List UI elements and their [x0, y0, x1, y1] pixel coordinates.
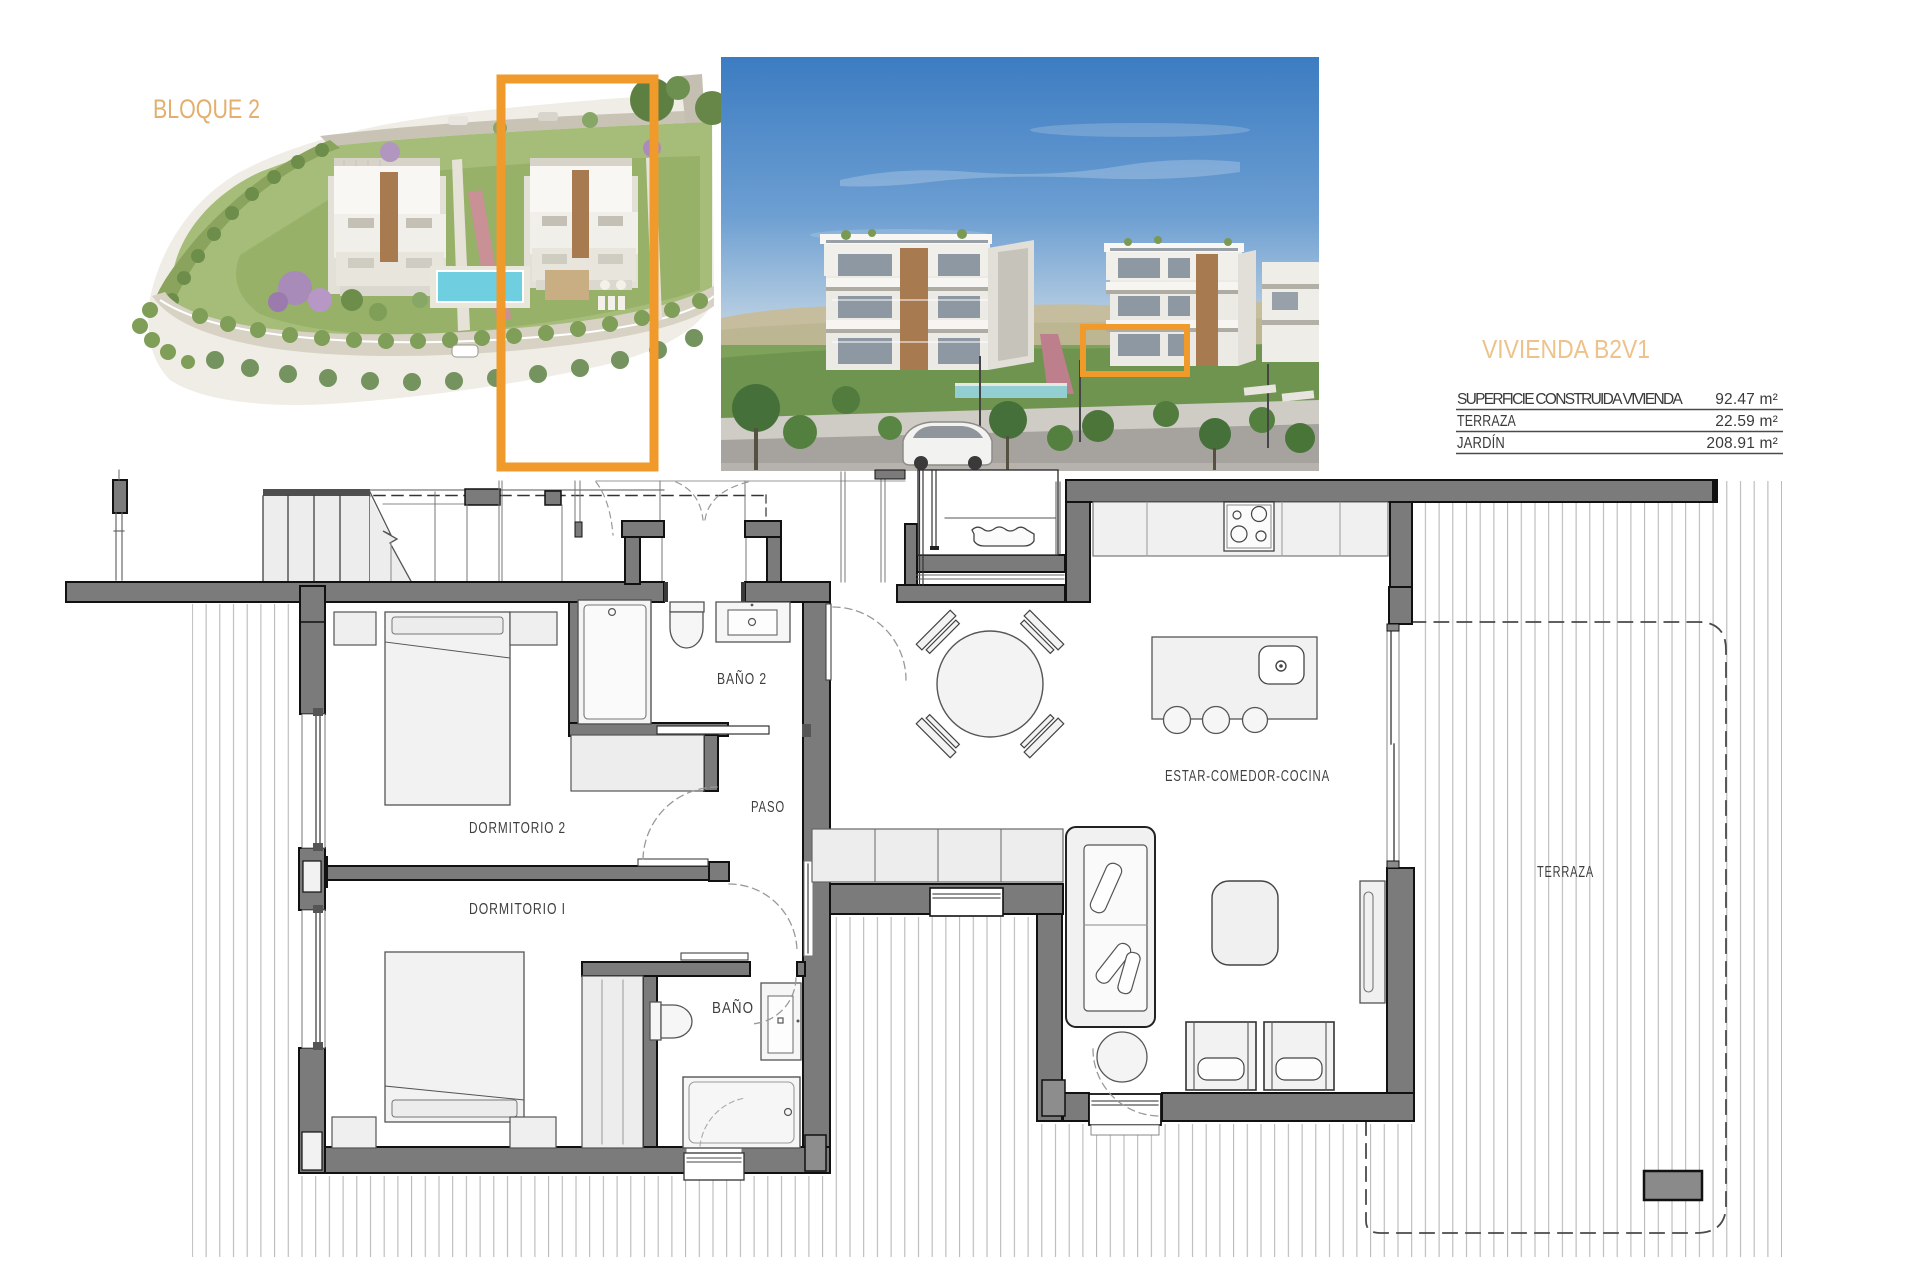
svg-text:208.91 m²: 208.91 m² — [1706, 435, 1778, 452]
svg-text:TERRAZA: TERRAZA — [1457, 413, 1516, 430]
svg-text:VIVIENDA B2V1: VIVIENDA B2V1 — [1482, 334, 1650, 364]
svg-text:BAÑO 2: BAÑO 2 — [717, 668, 767, 688]
svg-text:PASO: PASO — [751, 799, 785, 816]
svg-text:SUPERFICIE CONSTRUIDA VIVIENDA: SUPERFICIE CONSTRUIDA VIVIENDA — [1457, 391, 1683, 408]
svg-text:TERRAZA: TERRAZA — [1537, 864, 1594, 881]
svg-text:DORMITORIO I: DORMITORIO I — [469, 901, 566, 918]
svg-text:BAÑO: BAÑO — [712, 997, 754, 1017]
svg-text:BLOQUE 2: BLOQUE 2 — [153, 94, 260, 124]
svg-text:DORMITORIO 2: DORMITORIO 2 — [469, 820, 566, 837]
svg-text:92.47 m²: 92.47 m² — [1715, 391, 1778, 408]
svg-text:22.59 m²: 22.59 m² — [1715, 413, 1778, 430]
svg-text:ESTAR-COMEDOR-COCINA: ESTAR-COMEDOR-COCINA — [1165, 768, 1330, 785]
svg-text:JARDÍN: JARDÍN — [1457, 435, 1505, 452]
